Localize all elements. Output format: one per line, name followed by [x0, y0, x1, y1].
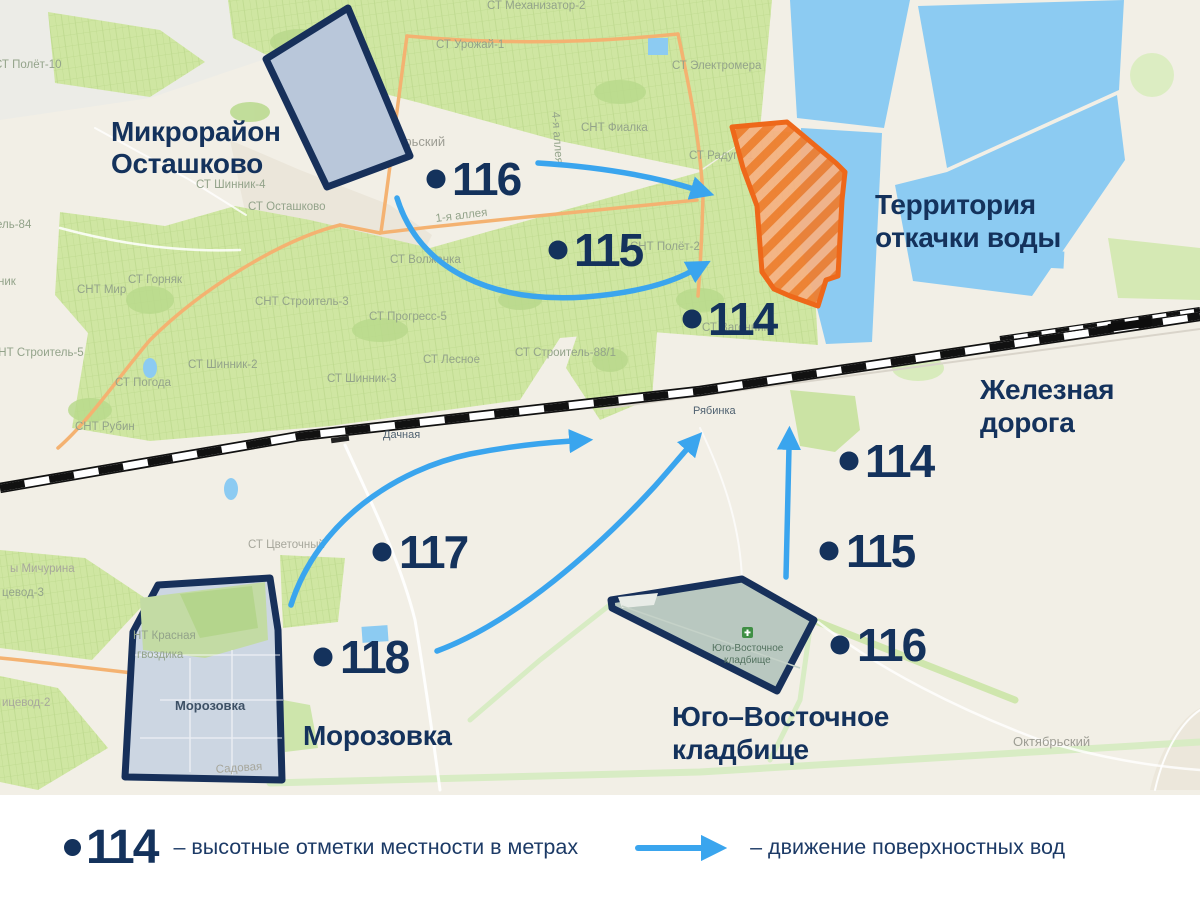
- elevation-value: 114: [708, 293, 779, 345]
- infographic-map-screenshot: СТ Механизатор-2 СТ Урожай-1 СТ Электром…: [0, 0, 1200, 900]
- annotation-railroad: дорога: [980, 407, 1075, 438]
- map-label: СТ Волжанка: [390, 254, 461, 266]
- map-label: СТ Прогресс-5: [369, 311, 447, 323]
- map-canvas: СТ Механизатор-2 СТ Урожай-1 СТ Электром…: [0, 0, 1200, 795]
- legend-elevation-item: 114 – высотные отметки местности в метра…: [64, 824, 578, 872]
- map-label: СТ Осташково: [248, 201, 326, 213]
- map-label: СНТ Фиалка: [581, 122, 648, 134]
- legend: 114 – высотные отметки местности в метра…: [0, 795, 1200, 900]
- map-label: СНТ Строитель-5: [0, 347, 84, 359]
- map-label: СТ Горняк: [128, 274, 183, 286]
- elevation-value: 116: [452, 153, 521, 205]
- map-label: СНТ Строитель-3: [255, 296, 349, 308]
- map-label: СТ Погода: [115, 377, 172, 389]
- elevation-value: 117: [399, 526, 468, 578]
- map-label: ник: [0, 276, 17, 288]
- flow-arrow: [786, 447, 789, 577]
- map-label: цевод-3: [2, 587, 44, 599]
- map-label: СТ Строитель-88/1: [515, 347, 616, 359]
- map-label: ицевод-2: [2, 697, 50, 709]
- annotation-cemetery: кладбище: [672, 734, 809, 765]
- cemetery-icon: [742, 627, 753, 638]
- elevation-value: 114: [865, 435, 936, 487]
- map-label: СТ Шинник-3: [327, 373, 397, 385]
- map-label: гвоздика: [137, 649, 184, 661]
- annotation-microdistrict: Осташково: [111, 148, 263, 179]
- map-label: СТ Цветочный: [248, 539, 325, 551]
- map-label: ы Мичурина: [10, 563, 75, 575]
- legend-elevation-value: 114: [86, 824, 157, 872]
- legend-flow-label: – движение поверхностных вод: [750, 835, 1065, 860]
- legend-flow-item: – движение поверхностных вод: [634, 835, 1065, 861]
- annotation-microdistrict: Микрорайон: [111, 116, 281, 147]
- annotation-railroad: Железная: [979, 374, 1114, 405]
- annotation-morozovka: Морозовка: [303, 720, 452, 751]
- map-label: СТ Урожай-1: [436, 39, 504, 51]
- map-label: СНТ Мир: [77, 284, 126, 296]
- annotation-pumping: откачки воды: [875, 222, 1061, 253]
- map-label: СТ Шинник-4: [196, 179, 266, 191]
- legend-elevation-label: – высотные отметки местности в метрах: [173, 835, 578, 860]
- map-label: Юго-Восточное: [712, 643, 784, 654]
- map-label: СТ Шинник-2: [188, 359, 258, 371]
- settlement-label: Октябрьский: [1013, 734, 1090, 749]
- map-label: НТ Красная: [133, 630, 196, 642]
- map-label: СТ Электромера: [672, 60, 762, 72]
- annotation-pumping: Территория: [875, 189, 1036, 220]
- elevation-value: 115: [846, 525, 916, 577]
- map-label: СНТ Рубин: [75, 421, 135, 433]
- station-label: Рябинка: [693, 405, 737, 417]
- elevation-value: 116: [857, 619, 926, 671]
- annotation-cemetery: Юго–Восточное: [672, 701, 889, 732]
- flow-arrow-icon: [634, 835, 734, 861]
- map-label: Морозовка: [175, 698, 246, 713]
- elevation-dot-icon: [64, 839, 81, 856]
- map-label: кладбище: [724, 654, 771, 666]
- station-label: Дачная: [383, 429, 420, 441]
- map-label: СТ Механизатор-2: [487, 0, 585, 12]
- map-label: СТ Лесное: [423, 354, 480, 366]
- elevation-value: 118: [340, 631, 410, 683]
- map-label: ель-84: [0, 219, 32, 231]
- elevation-value: 115: [574, 224, 644, 276]
- morozovka-boundary: [125, 578, 283, 780]
- map-label: СТ Полёт-10: [0, 59, 62, 71]
